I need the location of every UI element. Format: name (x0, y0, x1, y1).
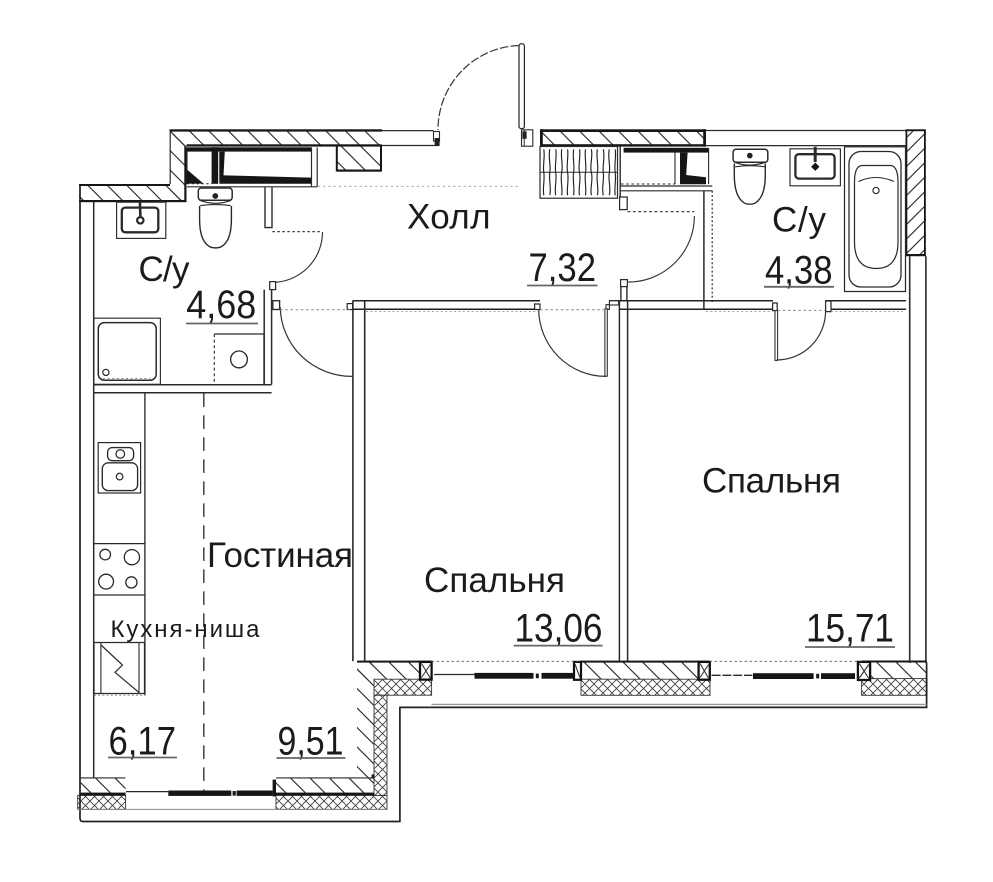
svg-text:9,51: 9,51 (278, 720, 344, 764)
svg-text:Гостиная: Гостиная (207, 536, 353, 575)
svg-text:4,68: 4,68 (186, 283, 256, 327)
svg-text:Спальня: Спальня (424, 561, 565, 600)
svg-text:С/у: С/у (772, 201, 827, 240)
svg-text:15,71: 15,71 (806, 607, 894, 651)
svg-text:Холл: Холл (407, 198, 491, 237)
svg-text:С/у: С/у (139, 250, 191, 289)
svg-text:Спальня: Спальня (702, 462, 841, 501)
svg-text:13,06: 13,06 (515, 607, 603, 651)
svg-text:7,32: 7,32 (529, 246, 597, 290)
svg-text:Кухня-ниша: Кухня-ниша (111, 616, 261, 643)
